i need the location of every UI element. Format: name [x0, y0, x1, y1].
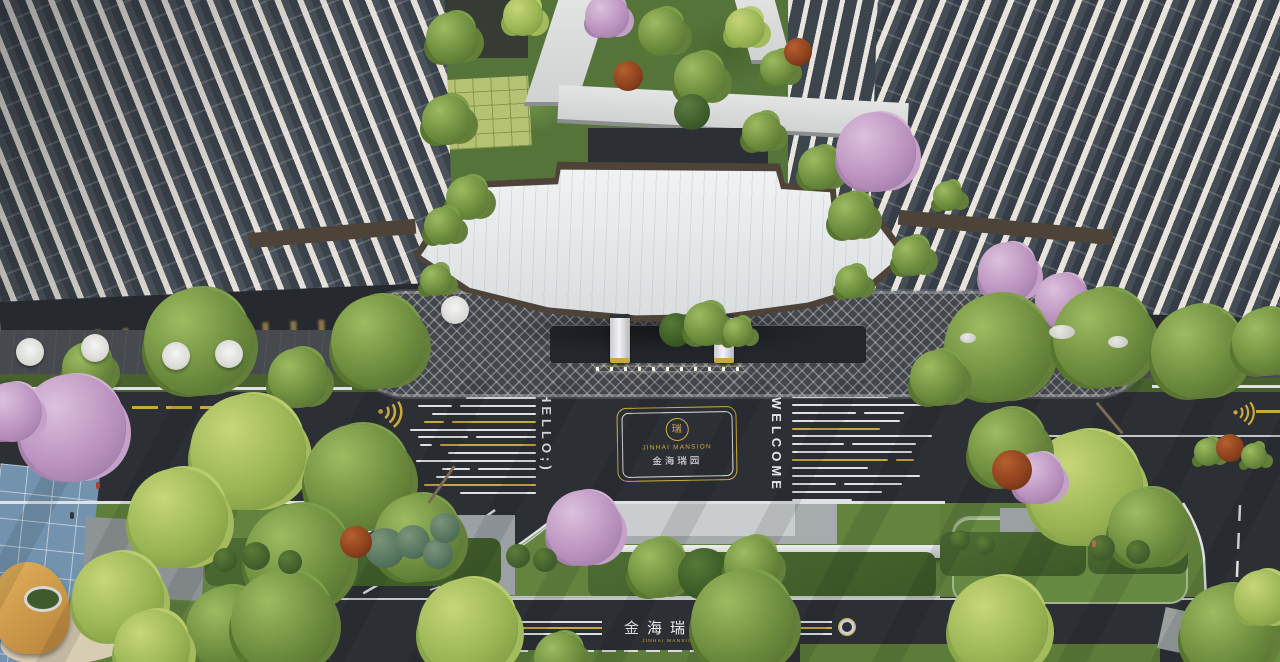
tree-shadow-overlay: [0, 380, 1280, 662]
aerial-render: HELLO;) WELCOME 瑞 JINHAI MANSION 金海瑞园 金海…: [0, 0, 1280, 662]
canopy-column-right: [714, 314, 734, 363]
canopy-column-left: [610, 314, 630, 363]
plaza-lights: [596, 367, 746, 371]
